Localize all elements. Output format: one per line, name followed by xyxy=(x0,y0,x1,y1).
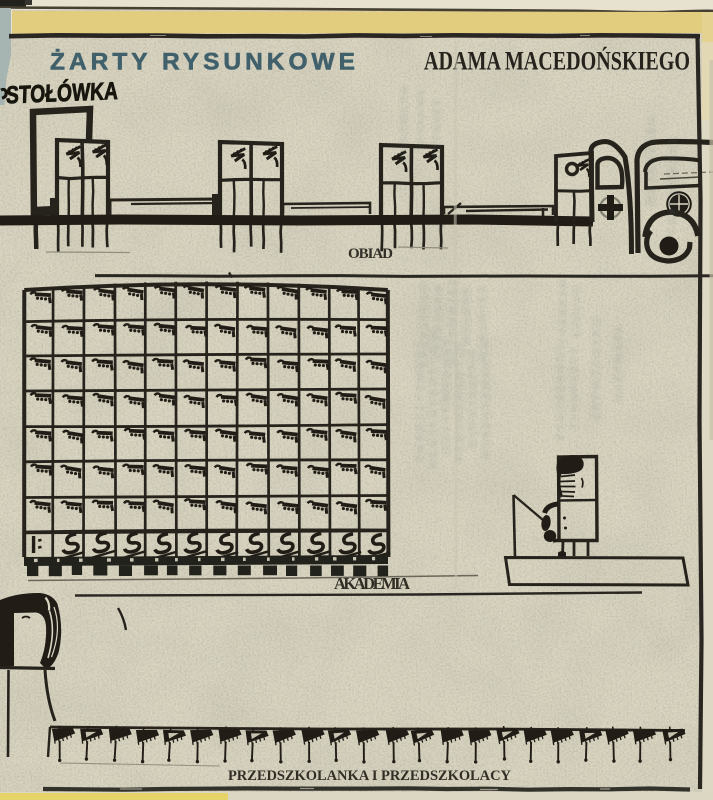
svg-text:SPAEOAPB: SPAEOAPB xyxy=(433,283,445,360)
svg-text:PRZEDSZKOLANKA I PRZEDSZKOLACY: PRZEDSZKOLANKA I PRZEDSZKOLACY xyxy=(228,768,512,784)
svg-text:YSNOUOWBSZ: YSNOUOWBSZ xyxy=(667,135,679,235)
svg-text:ZRPWZZOYKU: ZRPWZZOYKU xyxy=(589,315,603,420)
svg-text:UUKZBKSH: UUKZBKSH xyxy=(399,84,411,162)
svg-text:YRUPZYEBW: YRUPZYEBW xyxy=(419,280,431,368)
svg-text:YHYAKWK: YHYAKWK xyxy=(416,87,427,152)
svg-text:ADAMA MACEDOŃSKIEGO: ADAMA MACEDOŃSKIEGO xyxy=(424,46,690,76)
svg-text:NKEPWSPA: NKEPWSPA xyxy=(613,323,625,402)
svg-text:TWSSHMS: TWSSHMS xyxy=(461,285,473,355)
svg-text:WZRUBYES: WZRUBYES xyxy=(477,283,489,362)
svg-text:OBIAD: OBIAD xyxy=(348,246,393,262)
svg-text:PSHUAYWBNT: PSHUAYWBNT xyxy=(555,342,567,440)
svg-text:MZYPMWZEZ: MZYPMWZEZ xyxy=(447,277,459,366)
svg-text:EZPSUES: EZPSUES xyxy=(432,97,443,158)
svg-text:RRZKYZTSU: RRZKYZTSU xyxy=(644,114,658,205)
svg-text:ZYBNPKRYZ: ZYBNPKRYZ xyxy=(569,345,581,430)
svg-text:HAOMRAW: HAOMRAW xyxy=(558,277,569,345)
svg-text:AKADEMIA: AKADEMIA xyxy=(334,574,410,593)
svg-text:STOŁÓWKA: STOŁÓWKA xyxy=(6,77,119,109)
svg-text:EOHYHK: EOHYHK xyxy=(572,283,583,338)
